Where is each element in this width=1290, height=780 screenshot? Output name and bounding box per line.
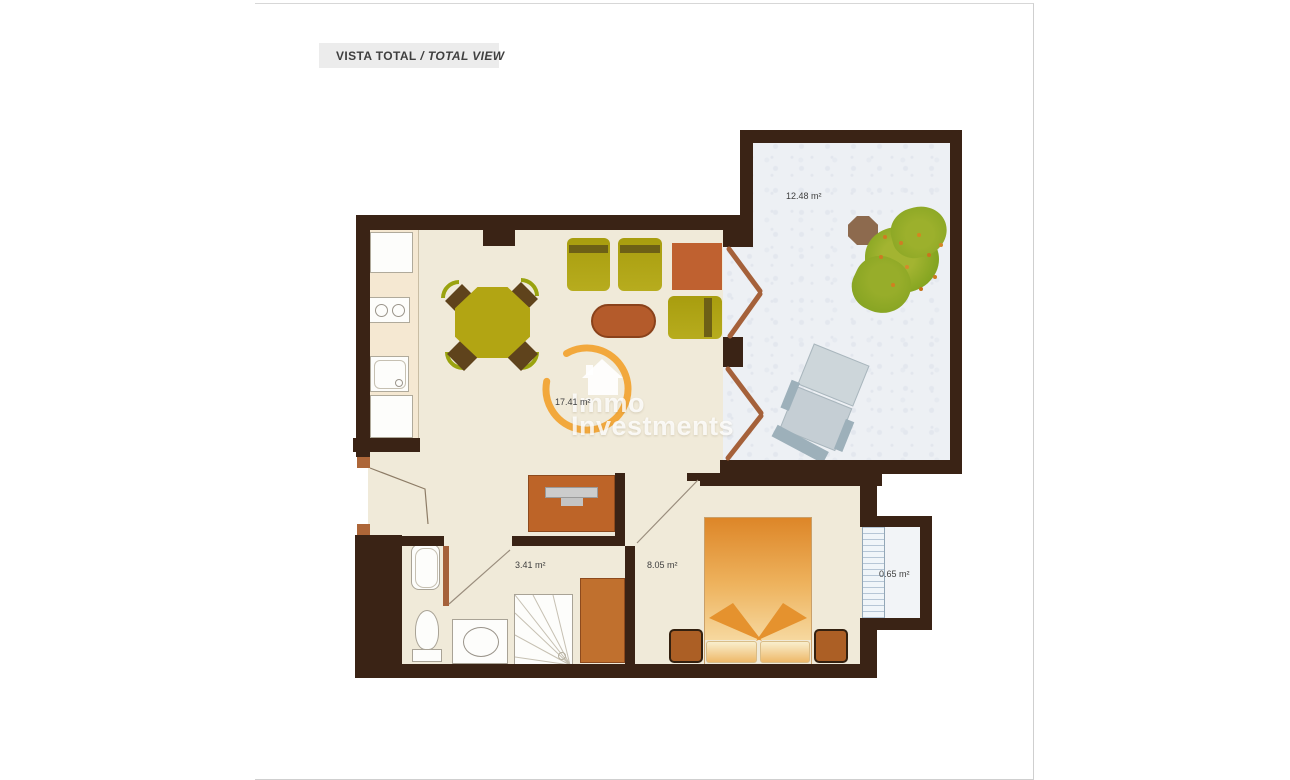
floorplan-page: VISTA TOTAL / TOTAL VIEW: [0, 0, 1290, 780]
room-label-bathroom: 3.41 m²: [515, 560, 546, 570]
terrace-door-bottom: [728, 369, 761, 458]
room-label-bedroom: 8.05 m²: [647, 560, 678, 570]
bathroom-door-swing: [449, 550, 510, 604]
bathroom-door-leaf: [443, 546, 449, 606]
bedroom-door-swing: [637, 480, 698, 543]
room-label-living: 17.41 m²: [555, 397, 591, 407]
door-swing-layer: [0, 0, 1290, 780]
terrace-door-top: [729, 249, 760, 336]
entry-door-swing: [370, 468, 428, 524]
room-label-storage: 0.65 m²: [879, 569, 910, 579]
room-label-terrace: 12.48 m²: [786, 191, 822, 201]
